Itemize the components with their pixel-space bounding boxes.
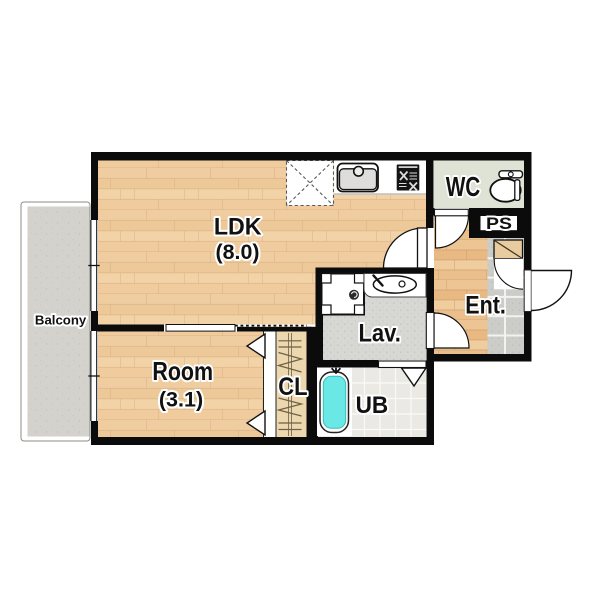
svg-text:(8.0): (8.0) bbox=[216, 241, 260, 264]
svg-text:PS: PS bbox=[486, 215, 512, 233]
svg-text:LDK: LDK bbox=[214, 214, 262, 241]
svg-text:Ent.: Ent. bbox=[465, 291, 506, 319]
svg-text:WC: WC bbox=[446, 171, 481, 202]
svg-text:CL: CL bbox=[278, 373, 307, 401]
svg-text:UB: UB bbox=[356, 392, 389, 419]
svg-text:Balcony: Balcony bbox=[35, 313, 87, 328]
svg-text:Room: Room bbox=[152, 356, 213, 386]
svg-text:Lav.: Lav. bbox=[358, 320, 401, 348]
svg-text:(3.1): (3.1) bbox=[159, 389, 203, 412]
